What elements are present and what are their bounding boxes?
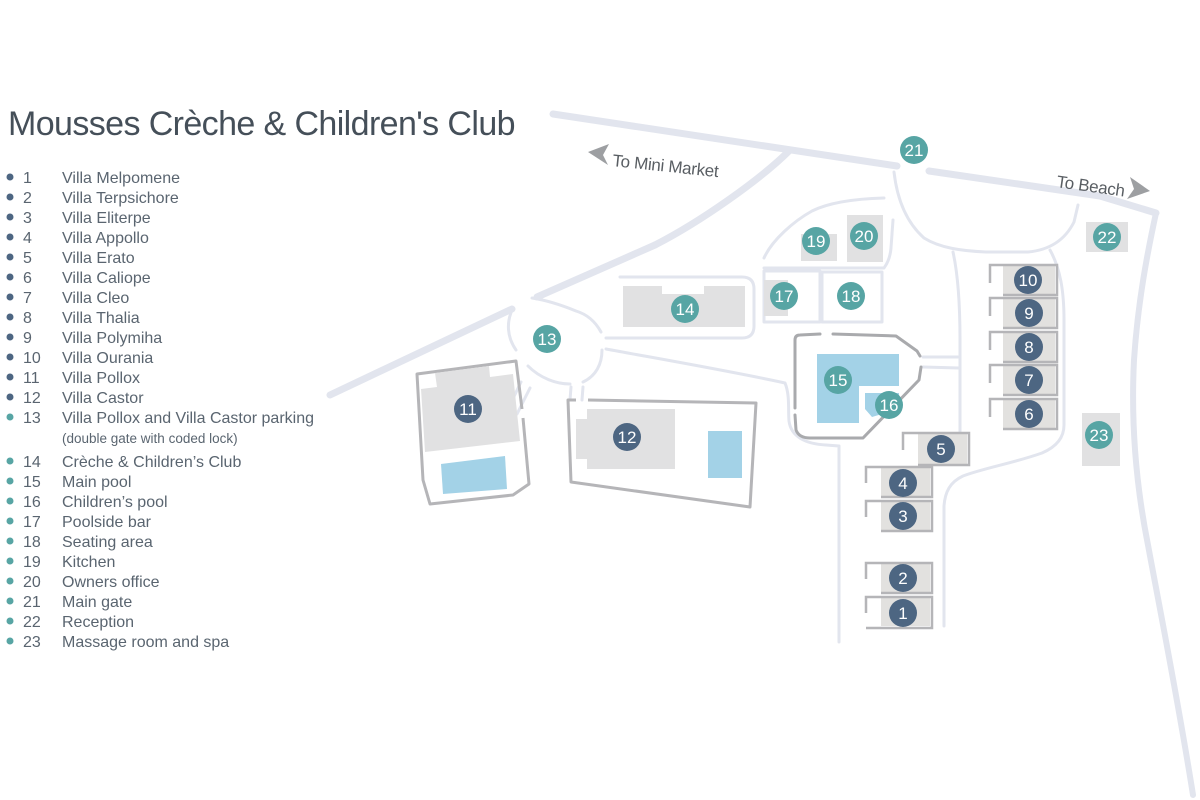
svg-text:(double gate with coded lock): (double gate with coded lock) bbox=[62, 431, 238, 446]
svg-text:3: 3 bbox=[898, 507, 907, 526]
svg-text:Villa Melpomene: Villa Melpomene bbox=[62, 170, 180, 187]
svg-text:18: 18 bbox=[23, 534, 41, 551]
svg-text:Villa Polymiha: Villa Polymiha bbox=[62, 330, 162, 347]
svg-text:Main pool: Main pool bbox=[62, 474, 131, 491]
svg-text:14: 14 bbox=[23, 454, 41, 471]
svg-text:15: 15 bbox=[23, 474, 41, 491]
svg-text:Villa Erato: Villa Erato bbox=[62, 250, 135, 267]
svg-text:1: 1 bbox=[23, 170, 32, 187]
svg-text:7: 7 bbox=[23, 290, 32, 307]
svg-text:7: 7 bbox=[1024, 371, 1033, 390]
svg-text:6: 6 bbox=[1024, 405, 1033, 424]
svg-text:5: 5 bbox=[23, 250, 32, 267]
svg-text:21: 21 bbox=[23, 594, 41, 611]
svg-text:12: 12 bbox=[23, 390, 41, 407]
svg-text:Owners office: Owners office bbox=[62, 574, 160, 591]
svg-text:Mousses Crèche & Children's Cl: Mousses Crèche & Children's Club bbox=[8, 105, 515, 143]
svg-text:16: 16 bbox=[880, 396, 899, 415]
svg-text:6: 6 bbox=[23, 270, 32, 287]
svg-text:11: 11 bbox=[23, 370, 40, 387]
svg-text:Villa Ourania: Villa Ourania bbox=[62, 350, 153, 367]
svg-text:22: 22 bbox=[23, 614, 41, 631]
svg-text:10: 10 bbox=[1019, 271, 1038, 290]
svg-text:14: 14 bbox=[676, 300, 695, 319]
svg-text:13: 13 bbox=[538, 330, 557, 349]
svg-text:Villa Eliterpe: Villa Eliterpe bbox=[62, 210, 151, 227]
svg-text:Massage room and spa: Massage room and spa bbox=[62, 634, 229, 651]
svg-text:Villa Pollox: Villa Pollox bbox=[62, 370, 140, 387]
svg-text:4: 4 bbox=[898, 474, 907, 493]
svg-text:23: 23 bbox=[1090, 426, 1109, 445]
svg-text:Villa Cleo: Villa Cleo bbox=[62, 290, 129, 307]
svg-text:1: 1 bbox=[898, 604, 907, 623]
svg-text:4: 4 bbox=[23, 230, 32, 247]
svg-text:Poolside bar: Poolside bar bbox=[62, 514, 152, 531]
svg-text:9: 9 bbox=[23, 330, 32, 347]
svg-text:11: 11 bbox=[459, 400, 477, 419]
svg-text:19: 19 bbox=[807, 232, 826, 251]
svg-text:17: 17 bbox=[775, 287, 794, 306]
svg-text:Main gate: Main gate bbox=[62, 594, 132, 611]
svg-text:8: 8 bbox=[1024, 338, 1033, 357]
svg-text:21: 21 bbox=[905, 141, 924, 160]
svg-text:Reception: Reception bbox=[62, 614, 134, 631]
svg-text:20: 20 bbox=[855, 227, 874, 246]
svg-text:22: 22 bbox=[1098, 228, 1117, 247]
svg-text:Villa Thalia: Villa Thalia bbox=[62, 310, 140, 327]
svg-text:Villa Appollo: Villa Appollo bbox=[62, 230, 149, 247]
svg-text:15: 15 bbox=[829, 371, 848, 390]
svg-text:9: 9 bbox=[1024, 304, 1033, 323]
svg-text:Villa Caliope: Villa Caliope bbox=[62, 270, 151, 287]
svg-text:23: 23 bbox=[23, 634, 41, 651]
svg-text:Seating area: Seating area bbox=[62, 534, 153, 551]
svg-text:18: 18 bbox=[842, 287, 861, 306]
svg-text:2: 2 bbox=[23, 190, 32, 207]
svg-text:Villa Castor: Villa Castor bbox=[62, 390, 144, 407]
svg-text:Villa Pollox and Villa Castor: Villa Pollox and Villa Castor parking bbox=[62, 410, 314, 427]
svg-text:8: 8 bbox=[23, 310, 32, 327]
svg-text:5: 5 bbox=[936, 440, 945, 459]
svg-text:16: 16 bbox=[23, 494, 41, 511]
svg-text:Children’s pool: Children’s pool bbox=[62, 494, 168, 511]
svg-text:13: 13 bbox=[23, 410, 41, 427]
svg-text:10: 10 bbox=[23, 350, 41, 367]
svg-text:19: 19 bbox=[23, 554, 41, 571]
svg-text:Villa Terpsichore: Villa Terpsichore bbox=[62, 190, 179, 207]
svg-text:Crèche & Children’s Club: Crèche & Children’s Club bbox=[62, 454, 241, 471]
svg-text:12: 12 bbox=[618, 428, 637, 447]
svg-text:3: 3 bbox=[23, 210, 32, 227]
svg-text:2: 2 bbox=[898, 569, 907, 588]
svg-text:17: 17 bbox=[23, 514, 41, 531]
svg-text:Kitchen: Kitchen bbox=[62, 554, 115, 571]
svg-text:20: 20 bbox=[23, 574, 41, 591]
